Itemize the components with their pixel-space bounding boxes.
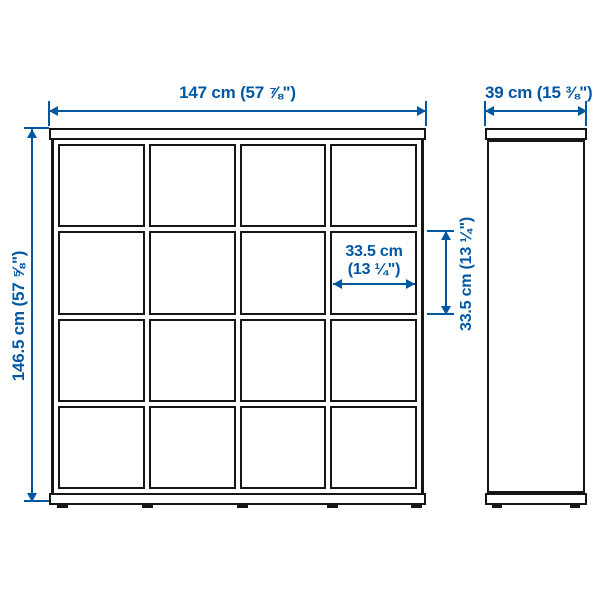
arrowhead-left-icon xyxy=(333,279,342,289)
foot xyxy=(492,505,502,508)
bottom-panel xyxy=(49,493,426,505)
cell-width-label-line1: 33.5 cm xyxy=(332,243,416,261)
shelf-cell xyxy=(58,406,145,489)
shelf-grid xyxy=(51,140,424,493)
shelf-cell xyxy=(240,319,327,402)
shelf-cell xyxy=(240,144,327,227)
shelf-cell xyxy=(330,406,417,489)
total-height-dimension-line xyxy=(31,129,33,502)
extension-tick xyxy=(24,500,49,502)
cell-height-label: 33.5 cm (13 ¼") xyxy=(458,217,476,331)
total-depth-label: 39 cm (15 ⅜") xyxy=(485,83,587,103)
shelf-cell xyxy=(149,231,236,314)
shelf-cell xyxy=(58,144,145,227)
arrowhead-right-icon xyxy=(406,279,415,289)
shelf-cell xyxy=(240,406,327,489)
shelf-side-view xyxy=(485,128,587,505)
extension-tick xyxy=(425,101,427,126)
cell-width-dimension-line xyxy=(333,283,415,285)
top-panel xyxy=(49,128,426,140)
extension-tick xyxy=(484,101,486,126)
extension-tick xyxy=(585,101,587,126)
total-height-label: 146.5 cm (57 ⅝") xyxy=(9,251,29,382)
cell-height-dimension-line xyxy=(445,231,447,315)
side-top-panel xyxy=(485,128,587,140)
foot xyxy=(237,505,248,508)
foot xyxy=(411,505,422,508)
arrowhead-left-icon xyxy=(49,106,58,116)
arrowhead-up-icon xyxy=(441,231,451,240)
total-depth-dimension-line xyxy=(485,110,587,112)
shelf-cell xyxy=(149,144,236,227)
shelf-cell xyxy=(240,231,327,314)
extension-tick xyxy=(24,127,49,129)
shelf-front-view xyxy=(49,128,426,505)
side-body xyxy=(487,140,585,493)
total-width-label: 147 cm (57 ⅞") xyxy=(49,83,426,103)
foot xyxy=(142,505,153,508)
shelf-cell xyxy=(149,319,236,402)
side-bottom-panel xyxy=(485,493,587,505)
foot xyxy=(327,505,338,508)
cell-width-label-line2: (13 ¼") xyxy=(332,261,416,279)
arrowhead-up-icon xyxy=(27,129,37,138)
product-dimension-diagram: 147 cm (57 ⅞") 39 cm (15 ⅜") 146.5 cm (5… xyxy=(0,0,600,600)
shelf-cell xyxy=(330,144,417,227)
shelf-cell xyxy=(58,319,145,402)
foot xyxy=(570,505,580,508)
extension-tick xyxy=(48,101,50,126)
arrowhead-down-icon xyxy=(441,306,451,315)
total-width-dimension-line xyxy=(49,110,426,112)
shelf-cell xyxy=(58,231,145,314)
arrowhead-left-icon xyxy=(485,106,494,116)
shelf-cell xyxy=(330,319,417,402)
shelf-cell xyxy=(149,406,236,489)
foot xyxy=(57,505,68,508)
